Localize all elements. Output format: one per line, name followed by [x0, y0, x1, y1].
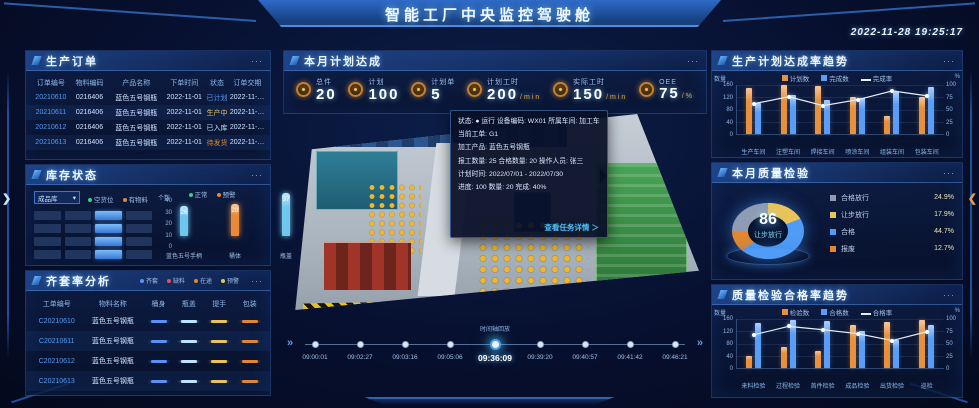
timeline-timestamp: 09:02:27: [336, 354, 384, 361]
legend-item[interactable]: 齐套: [140, 276, 158, 285]
panel-header: 本月质量检验 ···: [712, 163, 962, 183]
cell: 生产中: [204, 108, 230, 118]
column-header: 桶身: [143, 299, 173, 309]
x-axis-label: 成品检验: [840, 381, 875, 392]
legend-dot-icon: [194, 279, 198, 283]
cell: 20210610: [31, 94, 71, 101]
legend-item[interactable]: 报废12.7%: [830, 240, 954, 257]
rate-line: [737, 319, 944, 368]
kit-mark-cell: [143, 340, 173, 343]
cell: 2022-11-01: [164, 124, 204, 131]
kit-mark-cell: [235, 340, 265, 343]
material-name: 蓝色五号钢瓶: [82, 316, 143, 326]
kpi-badge-icon: [639, 82, 654, 97]
work-order-id: C20210610: [31, 318, 82, 325]
material-name: 蓝色五号钢瓶: [82, 336, 143, 346]
legend-label: 合格: [841, 227, 934, 237]
playback-timeline[interactable]: »»09:00:0109:02:2709:03:1609:05:0609:36:…: [283, 320, 707, 378]
panel-kit-rate: 齐套率分析 齐套缺料在途预警 ··· 工单编号物料名称桶身瓶盖提手包装C2021…: [25, 270, 271, 396]
cell: 0216406: [71, 109, 108, 116]
legend-value: 24.9%: [934, 194, 954, 201]
inventory-bar-chart: 正常预警 个数40302010026蓝色五号手柄28桶体37瓶盖: [158, 189, 266, 262]
kit-mark-cell: [204, 360, 234, 363]
column-header: 工单编号: [31, 299, 82, 309]
line-point: [752, 333, 756, 337]
axis-tick-left: 0: [713, 132, 733, 138]
column-header: 下单时间: [164, 78, 204, 88]
panel-monthly-plan: 本月计划达成 ··· 总件20计划100计划单5计划工时200/min实际工时1…: [283, 50, 707, 114]
timeline-dot[interactable]: [582, 341, 589, 348]
kit-mark-cell: [204, 320, 234, 323]
line-point: [890, 89, 894, 93]
kit-mark-cell: [204, 380, 234, 383]
cell: 蓝色五号钢瓶: [108, 93, 164, 103]
title-accent-icon: [717, 56, 727, 65]
donut-value: 86: [732, 211, 804, 229]
kit-status-mark: [242, 340, 258, 343]
cell: 待发货: [204, 138, 230, 148]
line-point: [787, 95, 791, 99]
title-accent-icon: [289, 56, 299, 65]
frame-bottom: [365, 397, 615, 405]
storage-cell[interactable]: [34, 211, 61, 220]
bar-category: 桶体: [210, 251, 260, 260]
title-accent-icon: [717, 290, 727, 299]
line-point: [787, 324, 791, 328]
storage-cell[interactable]: [126, 237, 153, 246]
legend-label: 报废: [841, 244, 934, 254]
more-icon[interactable]: ···: [937, 56, 955, 66]
legend-item[interactable]: 完成数: [821, 73, 849, 83]
tooltip-line: 状态: ● 运行 设备编码: WX01 所属车间: 加工车间: [458, 117, 600, 126]
bar-value: 26: [174, 209, 194, 216]
title-accent-icon: [31, 276, 41, 285]
storage-cell[interactable]: [126, 224, 153, 233]
kit-mark-cell: [174, 340, 204, 343]
axis-tick: 40: [158, 198, 172, 204]
kpi-value: 200/min: [487, 87, 541, 102]
storage-slot-grid: [34, 211, 152, 259]
kpi-badge-icon: [296, 82, 311, 97]
kpi-value: 100: [368, 87, 399, 102]
legend-item[interactable]: 合格率: [861, 307, 893, 317]
kpi-badge-icon: [348, 82, 363, 97]
inventory-chart-legend: 正常预警: [158, 189, 266, 199]
x-axis-label: 过程检验: [771, 381, 806, 392]
kpi-text: 计划工时200/min: [487, 77, 541, 102]
column-header: 状态: [204, 78, 230, 88]
timeline-dot[interactable]: [357, 341, 364, 348]
line-point: [821, 328, 825, 332]
column-header: 瓶盖: [174, 299, 204, 309]
storage-cell[interactable]: [95, 224, 122, 233]
cell: 已计划: [204, 93, 230, 103]
storage-cell[interactable]: [95, 250, 122, 259]
axis-tick-left: 0: [713, 366, 733, 372]
order-row[interactable]: 202106110216406蓝色五号钢瓶2022-11-01生产中2022-1…: [26, 105, 270, 120]
work-order-id: C20210613: [31, 378, 82, 385]
axis-unit-left: 数量: [714, 74, 726, 83]
line-point: [856, 98, 860, 102]
line-point: [752, 102, 756, 106]
material-name: 蓝色五号钢瓶: [82, 356, 143, 366]
frame-line-right: [970, 70, 972, 358]
panel-inventory-status: 库存状态 ··· 成品库 ▾ 空货位有物料 正常预警 个数40302010026…: [25, 164, 271, 266]
legend-item[interactable]: 预警: [217, 189, 236, 199]
play-back-icon: »: [287, 337, 293, 349]
timeline-dot[interactable]: [490, 339, 501, 350]
kpi-value: 5: [431, 87, 455, 102]
more-icon[interactable]: ···: [245, 56, 263, 66]
x-axis-labels: 生产车间注塑车间焊接车间喷涂车间组装车间包装车间: [736, 147, 944, 158]
more-icon[interactable]: ···: [937, 168, 955, 178]
x-axis-label: 首件检验: [805, 381, 840, 392]
kpi-text: OEE75/%: [659, 79, 694, 101]
storage-cell[interactable]: [34, 237, 61, 246]
legend-swatch-icon: [861, 313, 871, 315]
kit-mark-cell: [174, 360, 204, 363]
axis-tick-left: 40: [713, 354, 733, 360]
tooltip-line: 报工数量: 25 合格数量: 20 操作人员: 张三: [458, 157, 600, 166]
clock: 2022-11-28 19:25:17: [851, 27, 963, 38]
kpi-value: 75/%: [659, 86, 694, 101]
tooltip-line: 进度: 100 数量: 20 完成: 40%: [458, 183, 600, 192]
storage-cell[interactable]: [126, 250, 153, 259]
chevron-right-icon: ❯: [2, 192, 11, 205]
axis-tick-right: 0: [946, 366, 962, 372]
axis-tick-right: 25: [946, 120, 962, 126]
rate-line: [737, 85, 944, 134]
timeline-dot[interactable]: [447, 341, 454, 348]
kit-mark-cell: [143, 360, 173, 363]
chevron-left-icon: ❮: [968, 192, 977, 205]
x-axis-labels: 来料检验过程检验首件检验成品检验出货检验巡检: [736, 381, 944, 392]
timeline-dot[interactable]: [537, 341, 544, 348]
slot-legend: 空货位有物料: [88, 194, 148, 204]
kit-mark-cell: [235, 380, 265, 383]
cell: 蓝色五号钢瓶: [108, 108, 164, 118]
dashboard-root: 智能工厂中央监控驾驶舱 2022-11-28 19:25:17 ❯ ❮ 生产订单…: [0, 0, 979, 408]
panel-pass-rate-trend: 质量检验合格率趋势 ··· 检验数合格数合格率16010012075805040…: [711, 284, 963, 398]
donut-base-ring: [726, 247, 810, 265]
kit-mark-cell: [235, 320, 265, 323]
material-name: 蓝色五号钢瓶: [82, 376, 143, 386]
panel-header: 库存状态 ···: [26, 165, 270, 185]
column-header: 订单交期: [230, 78, 265, 88]
column-header: 提手: [204, 299, 234, 309]
legend-item[interactable]: 在途: [194, 276, 212, 285]
legend-swatch-icon: [821, 75, 827, 81]
chart-legend: 计划数完成数完成率: [712, 72, 962, 83]
axis-tick-right: 50: [946, 107, 962, 113]
axis-tick-right: 75: [946, 95, 962, 101]
kit-status-mark: [151, 360, 167, 363]
cell: 0216406: [71, 139, 108, 146]
hazard-stripe-right: [588, 287, 687, 300]
cell: 20210611: [31, 109, 71, 116]
legend-swatch-icon: [782, 309, 788, 315]
warehouse-select-value: 成品库: [38, 193, 58, 203]
legend-item[interactable]: 缺料: [167, 276, 185, 285]
more-icon[interactable]: ···: [245, 170, 263, 180]
legend-item[interactable]: 合格放行24.9%: [830, 189, 954, 206]
play-forward-icon: »: [697, 337, 703, 349]
timeline-timestamp: 09:05:06: [426, 354, 474, 361]
axis-tick-right: 75: [946, 329, 962, 335]
kit-status-mark: [242, 360, 258, 363]
timeline-timestamp: 09:41:42: [606, 354, 654, 361]
cell: 20210613: [31, 139, 71, 146]
axis-tick-left: 80: [713, 107, 733, 113]
timeline-dot[interactable]: [312, 341, 319, 348]
chart-plot: [736, 319, 944, 369]
x-axis-label: 巡检: [909, 381, 944, 392]
kit-row[interactable]: C20210610蓝色五号钢瓶: [26, 311, 270, 331]
cell: 0216406: [71, 124, 108, 131]
cell: 0216406: [71, 94, 108, 101]
kpi-unit: /%: [682, 93, 694, 100]
panel-header: 本月计划达成 ···: [284, 51, 706, 71]
storage-cell[interactable]: [34, 224, 61, 233]
axis-tick: 0: [158, 244, 172, 250]
line-point: [925, 330, 929, 334]
kit-status-mark: [181, 340, 197, 343]
legend-dot-icon: [189, 193, 193, 197]
legend-swatch-icon: [830, 246, 836, 252]
kit-mark-cell: [235, 360, 265, 363]
legend-item[interactable]: 计划数: [782, 73, 810, 83]
panel-quality-inspection: 本月质量检验 ··· 86 让步放行 合格放行24.9%让步放行17.9%合格4…: [711, 162, 963, 280]
x-axis-label: 注塑车间: [771, 147, 806, 158]
timeline-timestamp: 09:46:21: [651, 354, 699, 361]
line-point: [856, 332, 860, 336]
legend-item[interactable]: 检验数: [782, 307, 810, 317]
order-row[interactable]: 202106130216406蓝色五号钢瓶2022-11-01待发货2022-1…: [26, 135, 270, 150]
legend-swatch-icon: [861, 79, 871, 81]
storage-cell[interactable]: [95, 211, 122, 220]
timeline-timestamp: 09:36:09: [471, 353, 519, 363]
panel-production-orders: 生产订单 ··· 订单编号物料编码产品名称下单时间状态订单交期202106100…: [25, 50, 271, 160]
table-header-row: 订单编号物料编码产品名称下单时间状态订单交期: [26, 75, 270, 90]
timeline-timestamp: 09:40:57: [561, 354, 609, 361]
panel-header: 生产订单 ···: [26, 51, 270, 71]
kpi-text: 计划100: [368, 77, 399, 102]
cell: 2022-11-01: [164, 139, 204, 146]
bar-category: 蓝色五号手柄: [159, 251, 209, 260]
kit-status-mark: [181, 360, 197, 363]
kpi-badge-icon: [411, 82, 426, 97]
storage-cell[interactable]: [65, 224, 92, 233]
kit-mark-cell: [204, 340, 234, 343]
axis-tick-left: 120: [713, 95, 733, 101]
storage-cell[interactable]: [65, 211, 92, 220]
kit-status-mark: [211, 340, 227, 343]
cell: 已入库: [204, 123, 230, 133]
timeline-timestamp: 09:00:01: [291, 354, 339, 361]
kpi-item: 计划工时200/min: [467, 77, 541, 102]
panel-title: 齐套率分析: [46, 273, 111, 289]
equipment-tooltip: 状态: ● 运行 设备编码: WX01 所属车间: 加工车间当前工单: G1加工…: [450, 110, 608, 238]
kpi-unit: /min: [606, 94, 627, 101]
panel-title: 生产计划达成率趋势: [732, 53, 849, 69]
cell: 2022-11-01: [164, 94, 204, 101]
legend-item[interactable]: 完成率: [861, 73, 893, 83]
timeline-dot[interactable]: [402, 341, 409, 348]
hazard-stripe-bottom: [303, 299, 591, 311]
panel-header: 质量检验合格率趋势 ···: [712, 285, 962, 305]
tooltip-line: 加工产品: 蓝色五号钢瓶: [458, 143, 600, 152]
title-accent-icon: [31, 170, 41, 179]
panel-title: 生产订单: [46, 53, 98, 69]
legend-item[interactable]: 空货位: [88, 194, 114, 204]
kit-mark-cell: [143, 380, 173, 383]
title-accent-icon: [31, 56, 41, 65]
axis-unit-right: %: [955, 74, 960, 80]
axis-tick-right: 100: [946, 316, 962, 322]
kit-status-mark: [211, 380, 227, 383]
cell: 蓝色五号钢瓶: [108, 138, 164, 148]
axis-tick: 10: [158, 233, 172, 239]
axis-tick-right: 50: [946, 341, 962, 347]
timeline-timestamp: 09:39:20: [516, 354, 564, 361]
pass-rate-chart: 检验数合格数合格率160100120758050402500数量%来料检验过程检…: [712, 306, 962, 392]
plan-rate-chart: 计划数完成数完成率160100120758050402500数量%生产车间注塑车…: [712, 72, 962, 158]
legend-label: 让步放行: [841, 210, 934, 220]
legend-swatch-icon: [830, 212, 836, 218]
kit-table: 工单编号物料名称桶身瓶盖提手包装C20210610蓝色五号钢瓶C20210611…: [26, 291, 270, 391]
cell: 20210612: [31, 124, 71, 131]
legend-swatch-icon: [821, 309, 827, 315]
storage-cell[interactable]: [65, 250, 92, 259]
page-title: 智能工厂中央监控驾驶舱: [0, 4, 979, 25]
line-point: [821, 104, 825, 108]
legend-item[interactable]: 正常: [189, 189, 208, 199]
panel-header: 生产计划达成率趋势 ···: [712, 51, 962, 71]
kit-row[interactable]: C20210612蓝色五号钢瓶: [26, 351, 270, 371]
panel-title: 本月质量检验: [732, 165, 810, 181]
warehouse-select[interactable]: 成品库 ▾: [34, 191, 80, 204]
axis-tick-right: 100: [946, 82, 962, 88]
kit-mark-cell: [174, 320, 204, 323]
legend-item[interactable]: 合格数: [821, 307, 849, 317]
storage-cell[interactable]: [126, 211, 153, 220]
x-axis-label: 来料检验: [736, 381, 771, 392]
quality-legend: 合格放行24.9%让步放行17.9%合格44.7%报废12.7%: [830, 189, 954, 257]
column-header: 包装: [235, 299, 265, 309]
kit-row[interactable]: C20210613蓝色五号钢瓶: [26, 371, 270, 391]
legend-value: 12.7%: [934, 245, 954, 252]
kit-row[interactable]: C20210611蓝色五号钢瓶: [26, 331, 270, 351]
legend-value: 17.9%: [934, 211, 954, 218]
cell: 2022-11-02: [230, 94, 265, 101]
kpi-item: OEE75/%: [639, 77, 694, 102]
legend-label: 合格放行: [841, 193, 934, 203]
kpi-badge-icon: [553, 82, 568, 97]
kit-mark-cell: [143, 320, 173, 323]
cell: 2022-11-01: [164, 109, 204, 116]
kit-status-mark: [242, 380, 258, 383]
x-axis-label: 喷涂车间: [840, 147, 875, 158]
kpi-item: 计划单5: [411, 77, 455, 102]
kit-status-mark: [151, 320, 167, 323]
column-header: 物料编码: [71, 78, 108, 88]
task-detail-link[interactable]: 查看任务详情 ＞: [544, 222, 599, 233]
orders-table: 订单编号物料编码产品名称下单时间状态订单交期202106100216406蓝色五…: [26, 71, 270, 150]
timeline-note: 时间轴回放: [460, 324, 530, 333]
legend-swatch-icon: [830, 229, 836, 235]
panel-title: 质量检验合格率趋势: [732, 287, 849, 303]
kpi-row: 总件20计划100计划单5计划工时200/min实际工时150/minOEE75…: [284, 71, 706, 102]
panel-title: 库存状态: [46, 167, 98, 183]
x-axis-label: 焊接车间: [805, 147, 840, 158]
kit-status-mark: [181, 380, 197, 383]
legend-dot-icon: [88, 198, 92, 202]
storage-cell[interactable]: [95, 237, 122, 246]
legend-item[interactable]: 让步放行17.9%: [830, 206, 954, 223]
more-icon[interactable]: ···: [681, 56, 699, 66]
more-icon[interactable]: ···: [245, 276, 263, 286]
legend-dot-icon: [221, 279, 225, 283]
legend-dot-icon: [123, 198, 127, 202]
kpi-text: 计划单5: [431, 77, 455, 102]
timeline-dot[interactable]: [627, 341, 634, 348]
more-icon[interactable]: ···: [937, 290, 955, 300]
legend-swatch-icon: [782, 75, 788, 81]
order-row[interactable]: 202106100216406蓝色五号钢瓶2022-11-01已计划2022-1…: [26, 90, 270, 105]
cell: 2022-11-02: [230, 139, 265, 146]
x-axis-label: 出货检验: [875, 381, 910, 392]
kpi-item: 计划100: [348, 77, 399, 102]
legend-item[interactable]: 预警: [221, 276, 239, 285]
timeline-dot[interactable]: [672, 341, 679, 348]
axis-unit-right: %: [955, 308, 960, 314]
tooltip-line: 当前工单: G1: [458, 130, 600, 139]
chart-legend: 检验数合格数合格率: [712, 306, 962, 317]
kpi-text: 实际工时150/min: [573, 77, 627, 102]
table-header-row: 工单编号物料名称桶身瓶盖提手包装: [26, 296, 270, 311]
line-point: [925, 94, 929, 98]
column-header: 产品名称: [108, 78, 164, 88]
column-header: 订单编号: [31, 78, 71, 88]
legend-value: 44.7%: [934, 228, 954, 235]
cell: 2022-11-02: [230, 109, 265, 116]
legend-item[interactable]: 合格44.7%: [830, 223, 954, 240]
storage-cell[interactable]: [34, 250, 61, 259]
kit-status-mark: [242, 320, 258, 323]
axis-tick-right: 0: [946, 132, 962, 138]
chart-plot: [736, 85, 944, 135]
axis-tick-left: 40: [713, 120, 733, 126]
kit-status-mark: [211, 360, 227, 363]
kpi-badge-icon: [467, 82, 482, 97]
x-axis-label: 生产车间: [736, 147, 771, 158]
legend-dot-icon: [167, 279, 171, 283]
kpi-unit: /min: [520, 94, 541, 101]
storage-cell[interactable]: [65, 237, 92, 246]
work-order-id: C20210612: [31, 358, 82, 365]
quality-donut-chart: 86 让步放行: [724, 193, 820, 269]
legend-item[interactable]: 有物料: [123, 194, 149, 204]
donut-center: 86 让步放行: [732, 211, 804, 240]
kit-mark-cell: [174, 380, 204, 383]
kit-status-mark: [151, 380, 167, 383]
kpi-value: 20: [316, 87, 337, 102]
frame-line-left: [7, 70, 9, 358]
axis-unit-left: 数量: [714, 308, 726, 317]
panel-plan-rate-trend: 生产计划达成率趋势 ··· 计划数完成数完成率16010012075805040…: [711, 50, 963, 158]
order-row[interactable]: 202106120216406蓝色五号钢瓶2022-11-01已入库2022-1…: [26, 120, 270, 135]
legend-dot-icon: [140, 279, 144, 283]
